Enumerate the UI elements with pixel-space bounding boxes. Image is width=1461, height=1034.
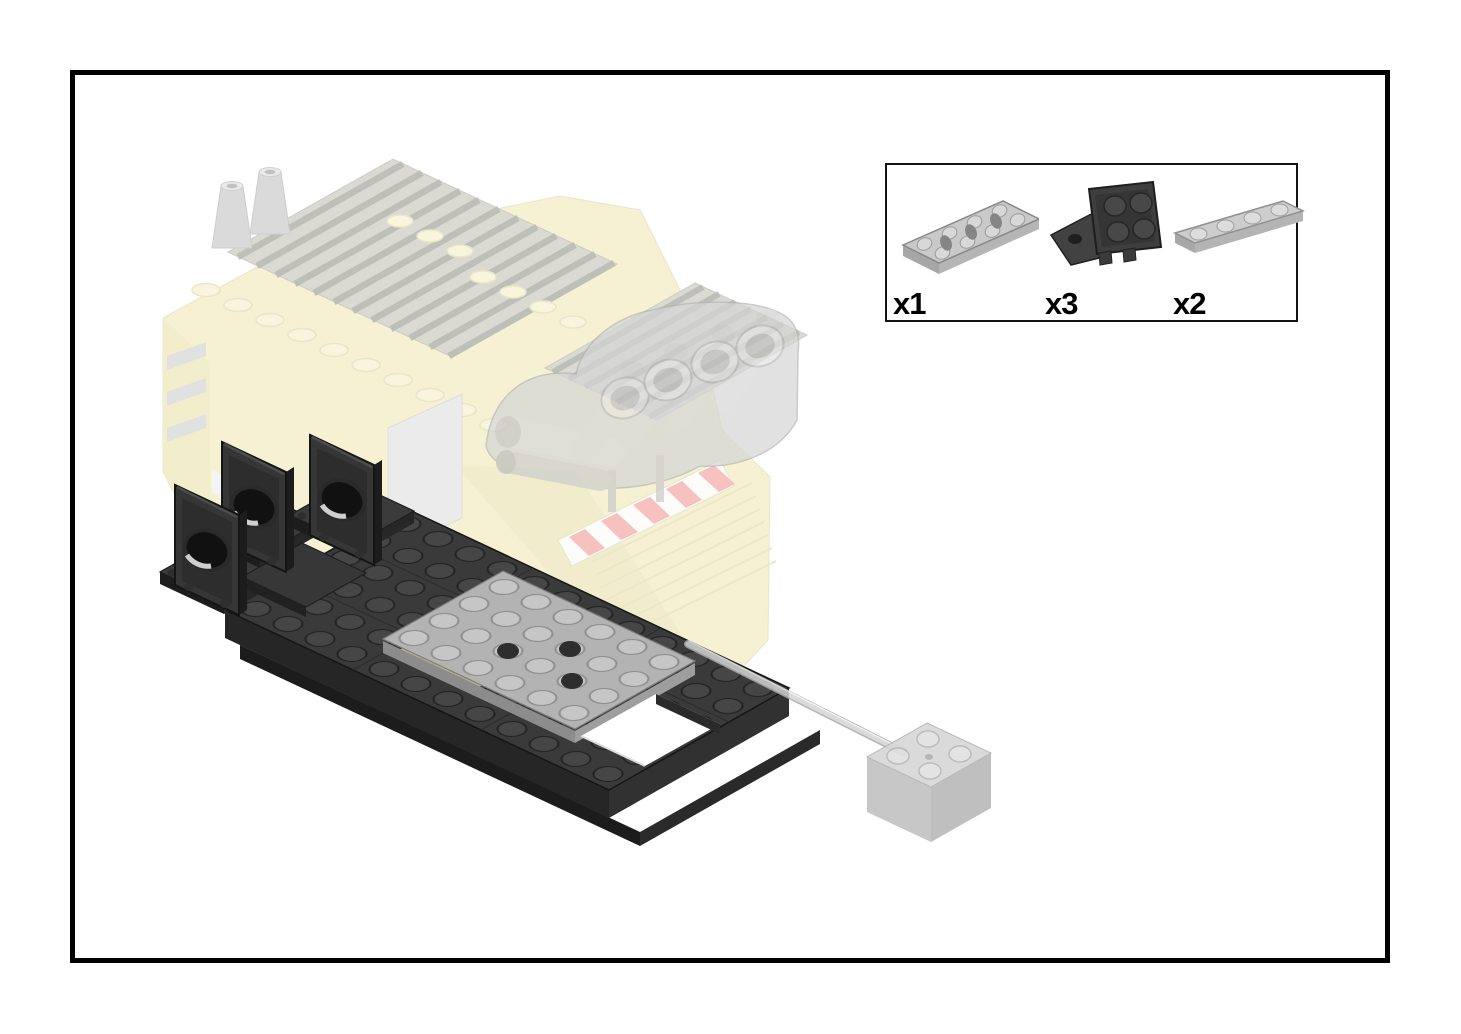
part-plate-1x4: x2: [1167, 165, 1296, 320]
parts-callout-box: x1 x3: [885, 163, 1298, 322]
plate-1x4-icon: [1169, 173, 1309, 285]
plate-2x4-with-holes-icon: [889, 173, 1039, 285]
part-bracket-2x2: x3: [1039, 165, 1167, 320]
part-plate-2x4-with-holes: x1: [887, 165, 1039, 320]
instruction-page: x1 x3: [0, 0, 1461, 1034]
part-quantity-label: x3: [1045, 288, 1077, 319]
ghost-exhaust-cone: [250, 168, 290, 235]
plate-hole: [497, 643, 519, 659]
ghost-exhaust-cone: [212, 182, 252, 249]
assembly-illustration: [0, 0, 1461, 1034]
part-quantity-label: x1: [893, 288, 925, 319]
bracket-2x2-icon: [1041, 173, 1167, 285]
part-quantity-label: x2: [1173, 288, 1205, 319]
plate-hole: [559, 641, 581, 657]
plate-hole: [561, 673, 583, 689]
